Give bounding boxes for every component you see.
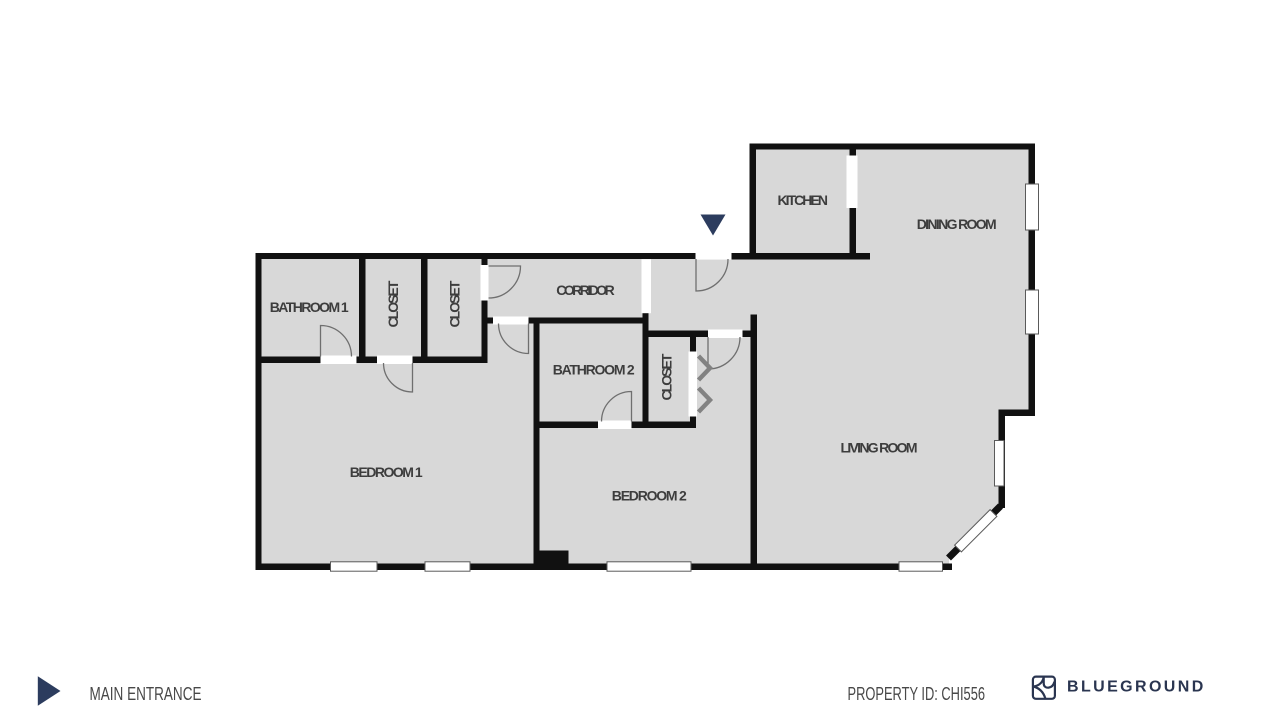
svg-text:BATHROOM 1: BATHROOM 1: [270, 299, 349, 315]
svg-text:KITCHEN: KITCHEN: [777, 192, 828, 208]
svg-text:BATHROOM 2: BATHROOM 2: [553, 362, 635, 378]
svg-text:DINING ROOM: DINING ROOM: [917, 216, 997, 232]
svg-text:CLOSET: CLOSET: [447, 280, 463, 327]
svg-text:BEDROOM 2: BEDROOM 2: [612, 487, 687, 503]
svg-text:BEDROOM 1: BEDROOM 1: [350, 464, 423, 480]
svg-text:PROPERTY ID: CHI556: PROPERTY ID: CHI556: [848, 684, 986, 704]
svg-text:CLOSET: CLOSET: [385, 280, 401, 327]
svg-text:CORRIDOR: CORRIDOR: [556, 282, 615, 298]
svg-text:BLUEGROUND: BLUEGROUND: [1067, 679, 1206, 696]
svg-text:MAIN ENTRANCE: MAIN ENTRANCE: [90, 684, 202, 704]
svg-text:CLOSET: CLOSET: [659, 353, 675, 400]
svg-text:LIVING ROOM: LIVING ROOM: [841, 439, 918, 455]
